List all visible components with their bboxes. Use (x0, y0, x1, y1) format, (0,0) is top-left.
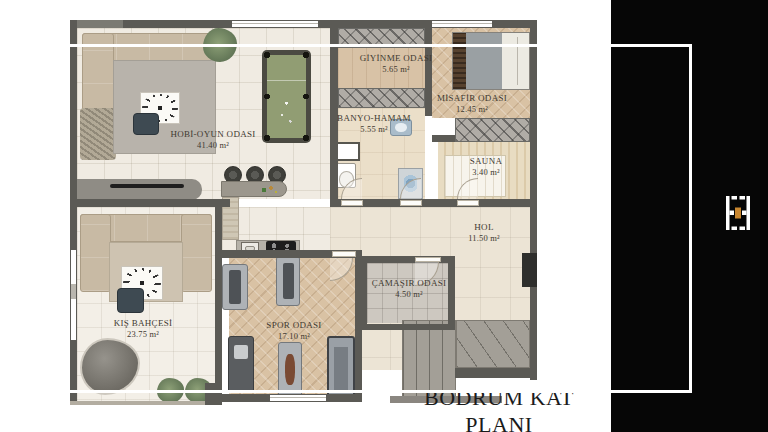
treadmill (327, 336, 355, 398)
room-label-hall: HOL 11.50 m² (468, 222, 500, 244)
wardrobe (338, 88, 425, 108)
room-label-winter-garden: KIŞ BAHÇESİ 23.75 m² (114, 318, 173, 340)
room-name: HOL (468, 222, 500, 233)
wardrobe (455, 118, 530, 142)
wall (355, 258, 362, 402)
room-area: 11.50 m² (468, 233, 500, 244)
room-name: HOBİ-OYUN ODASI (170, 129, 255, 140)
room-area: 12.45 m² (437, 104, 507, 115)
room-name: ÇAMAŞIR ODASI (372, 278, 447, 289)
wall (70, 199, 230, 207)
room-area: 5.55 m² (337, 124, 411, 135)
room-name: GİYİNME ODASI (360, 53, 433, 64)
dark-side-table (117, 288, 144, 313)
room-label-laundry: ÇAMAŞIR ODASI 4.50 m² (372, 278, 447, 300)
shaft (522, 253, 537, 287)
glass-wall (70, 401, 216, 405)
floor-plan: HOBİ-OYUN ODASI 41.40 m² GİYİNME ODASI 5… (0, 0, 611, 432)
wall (360, 324, 455, 330)
wardrobe (338, 28, 425, 48)
wg-sofa-right-arm (181, 214, 212, 292)
door (457, 200, 479, 206)
room-label-sauna: SAUNA 3.40 m² (470, 156, 503, 178)
wall (448, 256, 455, 330)
window (232, 21, 318, 27)
wall (70, 20, 77, 207)
brand-logo (725, 196, 751, 230)
brand-mark-icon (725, 196, 751, 230)
wall (455, 368, 537, 378)
bar-counter (221, 181, 287, 197)
door (332, 251, 356, 257)
staircase-winders (456, 320, 530, 368)
room-name: SAUNA (470, 156, 503, 167)
chaise-lounge (80, 108, 116, 160)
ottoman (133, 113, 159, 135)
room-name: KIŞ BAHÇESİ (114, 318, 173, 329)
room-label-dressing: GİYİNME ODASI 5.65 m² (360, 53, 433, 75)
room-name: SPOR ODASI (266, 320, 321, 331)
workout-bench (278, 342, 302, 397)
wg-sofa-left-arm (80, 214, 111, 292)
wall (215, 207, 222, 405)
room-area: 17.10 m² (266, 331, 321, 342)
room-area: 4.50 m² (372, 289, 447, 300)
pool-table (262, 50, 311, 143)
plan-caption: BODRUM KAT PLANI (394, 384, 604, 432)
wall (70, 20, 123, 28)
weight-machine (276, 256, 300, 306)
room-area: 5.65 m² (360, 64, 433, 75)
door (400, 200, 422, 206)
room-label-gym: SPOR ODASI 17.10 m² (266, 320, 321, 342)
window (71, 250, 76, 340)
room-name: BANYO-HAMAM (337, 113, 411, 124)
door (341, 200, 363, 206)
dumbbell-rack (228, 336, 254, 393)
room-label-hobby: HOBİ-OYUN ODASI 41.40 m² (170, 129, 255, 151)
room-label-guest: MİSAFİR ODASI 12.45 m² (437, 93, 507, 115)
room-area: 41.40 m² (170, 140, 255, 151)
room-area: 23.75 m² (114, 329, 173, 340)
screenshot-root: HOBİ-OYUN ODASI 41.40 m² GİYİNME ODASI 5… (0, 0, 768, 432)
room-label-bathroom: BANYO-HAMAM 5.55 m² (337, 113, 411, 135)
wall (432, 135, 455, 142)
window (270, 395, 326, 401)
guest-bed (452, 32, 530, 90)
room-area: 3.40 m² (470, 167, 503, 178)
window (428, 21, 492, 27)
room-name: MİSAFİR ODASI (437, 93, 507, 104)
right-black-bar (611, 0, 768, 432)
tv-unit (74, 179, 202, 200)
exercise-bike (222, 264, 248, 310)
